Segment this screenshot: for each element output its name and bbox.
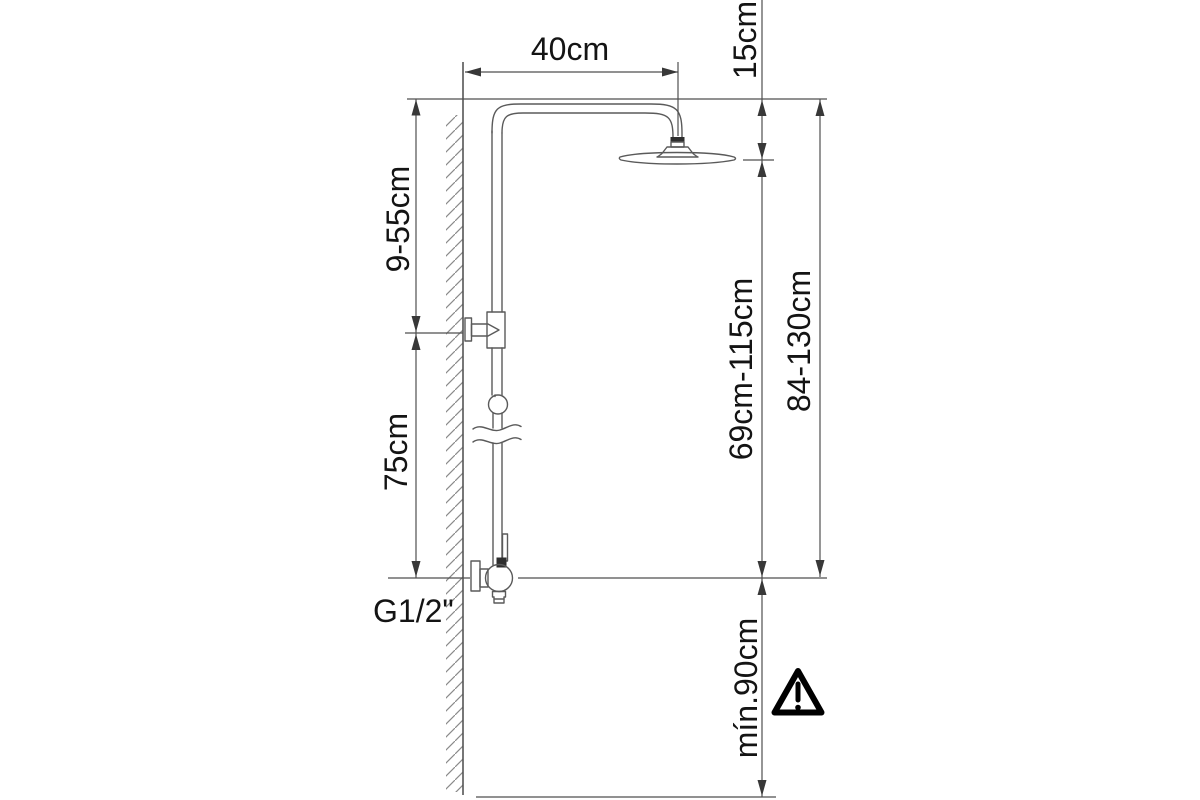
- slider-clamp: [487, 312, 505, 348]
- shower-column: [465, 104, 736, 603]
- arrowhead-down: [816, 560, 825, 576]
- dim-label-min-height: mín.90cm: [728, 618, 764, 758]
- shower-arm: [492, 104, 682, 138]
- wall-hatching: [446, 115, 463, 792]
- valve-lever: [503, 534, 508, 561]
- arrowhead-up: [758, 100, 767, 116]
- dim-label-thread: G1/2": [373, 593, 454, 629]
- arrowhead-right: [662, 68, 678, 77]
- arrowhead-up: [758, 579, 767, 595]
- dim-label-overall-height: 84-130cm: [781, 270, 817, 412]
- wall-bracket: [465, 312, 505, 348]
- head-disc: [619, 153, 735, 165]
- dim-label-outlet-to-head: 69cm-115cm: [723, 278, 759, 461]
- diagram-canvas: 40cm 15cm 9-55cm 75cm 69cm-115cm 84-130c…: [0, 0, 1200, 800]
- holder-knob: [489, 395, 508, 414]
- dim-label-riser-length: 75cm: [378, 413, 414, 491]
- dim-label-bracket-range: 9-55cm: [380, 166, 416, 273]
- arrowhead-down: [412, 316, 421, 332]
- arrowhead-left: [465, 68, 481, 77]
- head-connector: [671, 142, 684, 147]
- dim-label-arm-reach: 40cm: [531, 31, 609, 67]
- warning-triangle-icon: [775, 671, 822, 713]
- shower-dimension-diagram: 40cm 15cm 9-55cm 75cm 69cm-115cm 84-130c…: [0, 0, 1200, 800]
- arrowhead-down: [758, 561, 767, 577]
- break-lines: [473, 425, 521, 444]
- valve-wall-flange: [471, 561, 480, 591]
- shower-head: [619, 138, 735, 165]
- dimension-labels: 40cm 15cm 9-55cm 75cm 69cm-115cm 84-130c…: [373, 1, 817, 758]
- dim-label-head-offset: 15cm: [727, 1, 763, 79]
- arrowhead-down: [758, 143, 767, 159]
- valve-outlet: [493, 592, 506, 604]
- arrowhead-down: [758, 780, 767, 796]
- arrowhead-down: [412, 561, 421, 577]
- arrowhead-up: [758, 161, 767, 177]
- arrowhead-up: [816, 100, 825, 116]
- bracket-flange: [465, 318, 472, 341]
- warning-exclamation-dot: [795, 705, 801, 711]
- arrowhead-up: [412, 100, 421, 116]
- mixer-valve: [471, 534, 513, 603]
- valve-body: [486, 565, 513, 592]
- arrowhead-up: [412, 334, 421, 350]
- bracket-arm: [472, 324, 500, 336]
